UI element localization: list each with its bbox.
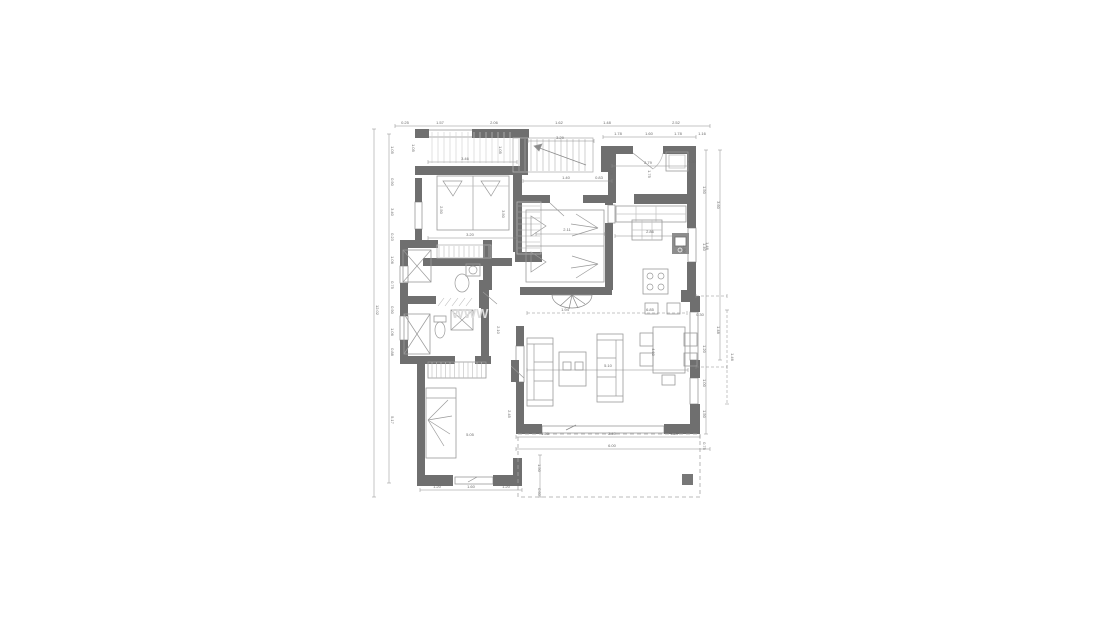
- dimension-label: 0.90: [390, 306, 395, 315]
- stairs-upper-treads: [519, 139, 585, 171]
- wall: [415, 178, 422, 202]
- dimension-label: 3.40: [390, 208, 395, 217]
- dimension-label: 1.94: [561, 307, 570, 312]
- dimension-label: 1.40: [562, 175, 571, 180]
- blanket-fan: [428, 420, 444, 446]
- window: [690, 378, 698, 404]
- burner: [658, 284, 664, 290]
- wall: [601, 154, 608, 172]
- dimension-label: 12.02: [375, 305, 380, 316]
- chair: [667, 303, 680, 314]
- wardrobe-hatch: [432, 362, 482, 378]
- dimension-label: 0.75: [390, 281, 395, 290]
- dimension-label: 2.52: [672, 120, 681, 125]
- dimension-label: 1.40: [702, 243, 707, 252]
- toilet-tank: [434, 316, 446, 322]
- blanket-fan: [576, 214, 598, 228]
- wall: [400, 283, 408, 296]
- dimension-label: 0.60: [537, 488, 542, 497]
- dimension-label: 1.60: [645, 131, 654, 136]
- dimension-label: 1.57: [436, 120, 445, 125]
- washbasin-bath1: [455, 274, 469, 292]
- hatch-line: [459, 298, 465, 306]
- dimension-label: 1.00: [702, 379, 707, 388]
- dining-table: [653, 327, 685, 373]
- rect: [563, 362, 571, 370]
- wall: [400, 296, 436, 304]
- threshold-hatch: [438, 298, 472, 306]
- dimension-label: 3.50: [501, 210, 506, 219]
- dimension-label: 2.10: [496, 326, 501, 335]
- sofa-right: [597, 334, 623, 402]
- blanket-fan: [572, 256, 598, 264]
- dimension-label: 0.25: [401, 120, 410, 125]
- dimension-label: 2.50: [439, 206, 444, 215]
- dimension-label: 5.05: [466, 432, 475, 437]
- dimension-label: 3.20: [466, 232, 475, 237]
- wall: [663, 146, 696, 154]
- dimension-label: 1.78: [674, 131, 683, 136]
- dimension-label: 5.17: [390, 416, 395, 425]
- dimension-label: 3.29: [556, 135, 565, 140]
- dimension-label: 1.50: [682, 245, 687, 254]
- burner: [647, 284, 653, 290]
- window: [608, 205, 615, 223]
- window: [455, 477, 493, 484]
- wall: [513, 175, 522, 252]
- pillow: [481, 181, 500, 196]
- dimension-label: 1.05: [390, 146, 395, 155]
- dimension-label: 3.60: [716, 201, 721, 210]
- dimension-label: 1.60: [467, 484, 476, 489]
- watermark-text: WWW: [452, 306, 490, 321]
- wall: [687, 262, 696, 296]
- dimension-label: 1.20: [702, 345, 707, 354]
- dimension-label: 0.83: [595, 175, 604, 180]
- window: [428, 130, 473, 137]
- blanket-fan: [571, 224, 598, 228]
- wall: [516, 424, 542, 434]
- wall: [423, 258, 485, 266]
- dimension-label: 1.05: [498, 146, 503, 155]
- hatch-line: [466, 298, 472, 306]
- door-bed2: [550, 203, 564, 216]
- dimension-label: 1.06: [390, 256, 395, 265]
- dimension-label: 1.48: [716, 326, 721, 335]
- dimension-label: 1.50: [702, 410, 707, 419]
- blanket-fan: [576, 264, 598, 278]
- stairs-arrow: [534, 146, 586, 165]
- wall: [690, 360, 700, 378]
- dimension-label: 1.78: [614, 131, 623, 136]
- dimension-labels-layer: 0.251.572.061.621.482.521.781.601.781.16…: [375, 120, 735, 497]
- dimension-label: 1.06: [390, 328, 395, 337]
- dimension-label: 2.45: [507, 410, 512, 419]
- dimension-label: 1.20: [502, 484, 511, 489]
- wall: [415, 129, 429, 138]
- dimension-label: 1.23: [670, 431, 679, 436]
- dimension-label: 2.06: [490, 120, 499, 125]
- fireplace: [552, 295, 592, 308]
- burner: [647, 273, 653, 279]
- dimension-label: 1.05: [411, 144, 416, 153]
- blanket-fan: [571, 264, 598, 268]
- blanket-fan: [428, 420, 450, 434]
- wall: [415, 166, 528, 175]
- wall: [400, 240, 438, 248]
- wall: [605, 223, 613, 290]
- blanket-fan: [572, 228, 598, 236]
- wall: [520, 287, 612, 295]
- floor-plan-canvas: 0.251.572.061.621.482.521.781.601.781.16…: [0, 0, 1110, 626]
- wall: [513, 458, 522, 486]
- dimension-label: 0.88: [390, 348, 395, 357]
- dimension-label: 1.75: [647, 170, 652, 179]
- dimension-lines-layer: [372, 124, 729, 497]
- dimension-label: 2.11: [563, 227, 571, 232]
- sofa-left: [527, 338, 553, 406]
- wall: [690, 404, 700, 434]
- dimension-label: 4.60: [651, 348, 656, 357]
- entry-door-arc: [653, 153, 663, 169]
- dimension-label: 1.20: [433, 484, 442, 489]
- hatch-line: [438, 298, 444, 306]
- dimension-label: 2.40: [608, 431, 617, 436]
- pillow: [531, 216, 546, 236]
- dimension-label: 0.90: [390, 178, 395, 187]
- hatch-line: [445, 298, 451, 306]
- wall: [400, 356, 455, 364]
- dimension-label: 2.79: [644, 160, 653, 165]
- cooktop-island: [643, 269, 668, 294]
- furniture-layer: [403, 132, 700, 497]
- chair: [662, 375, 675, 385]
- dimension-label: 1.46: [730, 353, 735, 362]
- chair: [640, 333, 653, 346]
- stairs-arrowhead: [534, 144, 542, 151]
- dimension-label: 1.75: [609, 167, 614, 176]
- terrace-column: [682, 474, 693, 485]
- wall: [511, 360, 519, 382]
- wall: [601, 146, 633, 154]
- circle: [469, 266, 477, 274]
- dimension-label: 3.46: [461, 156, 470, 161]
- wall: [634, 194, 694, 204]
- dimension-label: 1.23: [541, 431, 550, 436]
- dimension-label: 5.10: [604, 363, 613, 368]
- wall: [516, 326, 524, 346]
- bed-single-3: [426, 388, 456, 458]
- closet-hatch-bed1: [439, 246, 489, 257]
- dimension-label: 0.75: [702, 442, 707, 451]
- dimension-label: 0.30: [688, 159, 697, 164]
- hatch-line: [452, 298, 458, 306]
- pillow: [443, 181, 462, 196]
- window: [688, 228, 696, 262]
- wall: [492, 258, 512, 266]
- wall: [516, 382, 524, 404]
- wall: [608, 154, 616, 203]
- dimension-label: 0.23: [390, 233, 395, 242]
- dimension-label: 6.00: [608, 443, 617, 448]
- wall: [417, 356, 425, 475]
- burner: [658, 273, 664, 279]
- window: [542, 426, 664, 433]
- dimension-label: 6.85: [646, 307, 655, 312]
- floor-plan-svg: 0.251.572.061.621.482.521.781.601.781.16…: [0, 0, 1110, 626]
- dimension-label: 0.30: [696, 312, 705, 317]
- dimension-label: 2.86: [646, 229, 655, 234]
- toilet-bowl: [435, 322, 445, 338]
- rect: [575, 362, 583, 370]
- dimension-label: 1.50: [702, 186, 707, 195]
- dimension-label: 1.48: [603, 120, 612, 125]
- window: [415, 202, 422, 229]
- wall: [475, 356, 491, 364]
- dimension-label: 1.62: [555, 120, 564, 125]
- dimension-label: 1.16: [698, 131, 707, 136]
- dimension-label: 1.50: [537, 464, 542, 473]
